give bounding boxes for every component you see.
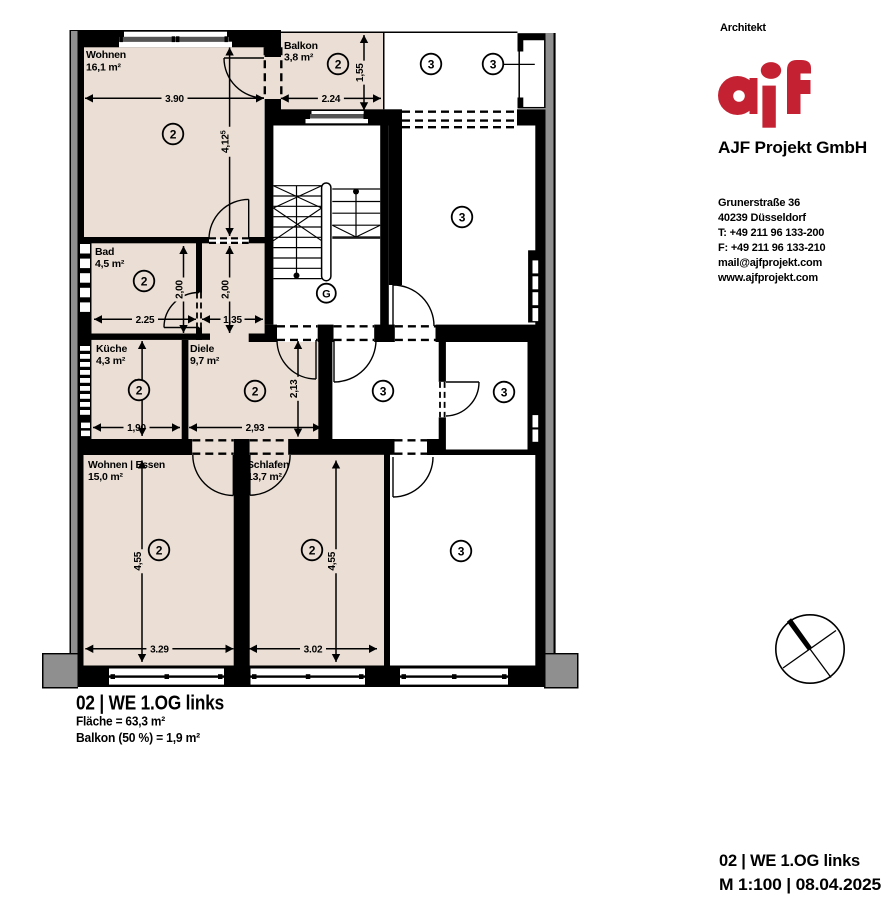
svg-text:4,55: 4,55 xyxy=(327,551,338,570)
svg-text:2.25: 2.25 xyxy=(136,315,155,326)
svg-text:2,93: 2,93 xyxy=(246,423,265,434)
svg-text:2: 2 xyxy=(335,57,342,71)
svg-text:3.29: 3.29 xyxy=(150,644,169,655)
svg-text:Fläche = 63,3 m²: Fläche = 63,3 m² xyxy=(76,714,166,729)
svg-text:4,55: 4,55 xyxy=(133,551,144,570)
svg-text:2: 2 xyxy=(309,543,316,557)
svg-text:02 | WE 1.OG links: 02 | WE 1.OG links xyxy=(76,693,224,715)
svg-text:mail@ajfprojekt.com: mail@ajfprojekt.com xyxy=(718,257,823,269)
svg-text:2,00: 2,00 xyxy=(221,280,232,299)
svg-text:3: 3 xyxy=(428,57,435,71)
svg-text:16,1 m²: 16,1 m² xyxy=(86,62,121,74)
svg-text:T: +49 211 96 133-200: T: +49 211 96 133-200 xyxy=(718,227,824,239)
svg-text:3: 3 xyxy=(459,210,466,224)
svg-text:4,5 m²: 4,5 m² xyxy=(95,258,125,270)
svg-text:Architekt: Architekt xyxy=(720,22,766,34)
svg-text:Balkon: Balkon xyxy=(284,40,318,52)
svg-text:Balkon (50 %) = 1,9 m²: Balkon (50 %) = 1,9 m² xyxy=(76,730,201,745)
svg-text:3: 3 xyxy=(380,384,387,398)
svg-text:2.24: 2.24 xyxy=(322,94,341,105)
svg-text:3: 3 xyxy=(458,544,465,558)
svg-text:Wohnen: Wohnen xyxy=(86,49,126,61)
svg-text:9,7 m²: 9,7 m² xyxy=(190,355,220,367)
svg-text:M 1:100 | 08.04.2025: M 1:100 | 08.04.2025 xyxy=(719,875,881,894)
svg-text:Wohnen | Essen: Wohnen | Essen xyxy=(88,459,165,471)
svg-text:2: 2 xyxy=(136,383,143,397)
svg-text:F: +49 211 96 133-210: F: +49 211 96 133-210 xyxy=(718,242,825,254)
svg-text:13,7 m²: 13,7 m² xyxy=(247,471,282,483)
svg-text:40239 Düsseldorf: 40239 Düsseldorf xyxy=(718,212,806,224)
svg-text:2: 2 xyxy=(141,274,148,288)
svg-text:G: G xyxy=(322,289,330,301)
svg-text:Grunerstraße 36: Grunerstraße 36 xyxy=(718,197,800,209)
svg-text:AJF Projekt GmbH: AJF Projekt GmbH xyxy=(718,139,867,157)
svg-text:Schlafen: Schlafen xyxy=(247,459,289,471)
svg-text:15,0 m²: 15,0 m² xyxy=(88,471,123,483)
svg-text:3.02: 3.02 xyxy=(304,644,323,655)
svg-text:4,3 m²: 4,3 m² xyxy=(96,355,126,367)
svg-text:Küche: Küche xyxy=(96,343,127,355)
svg-text:Bad: Bad xyxy=(95,246,114,258)
svg-text:1,35: 1,35 xyxy=(223,315,242,326)
svg-text:2,00: 2,00 xyxy=(175,280,186,299)
svg-text:02 | WE 1.OG links: 02 | WE 1.OG links xyxy=(719,851,860,870)
svg-text:3,8 m²: 3,8 m² xyxy=(284,52,314,64)
svg-text:3: 3 xyxy=(501,385,508,399)
svg-text:3: 3 xyxy=(490,57,497,71)
svg-text:2: 2 xyxy=(156,543,163,557)
svg-text:2: 2 xyxy=(252,384,259,398)
svg-text:1,55: 1,55 xyxy=(355,63,366,82)
svg-text:Diele: Diele xyxy=(190,343,214,355)
svg-text:2: 2 xyxy=(170,127,177,141)
svg-text:www.ajfprojekt.com: www.ajfprojekt.com xyxy=(717,272,818,284)
svg-text:3.90: 3.90 xyxy=(165,94,184,105)
svg-text:2,13: 2,13 xyxy=(289,379,300,398)
